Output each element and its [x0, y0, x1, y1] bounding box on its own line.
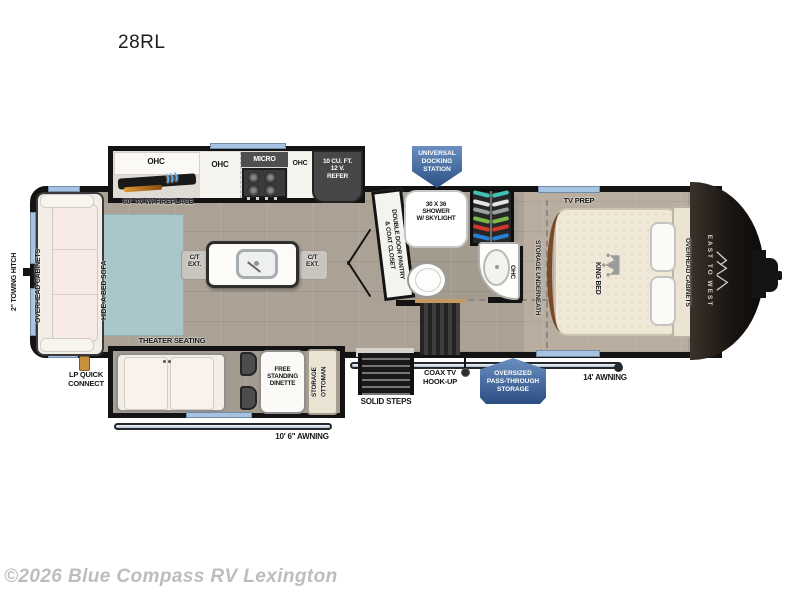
mountain-icon — [716, 249, 730, 293]
hitch-icon — [23, 268, 31, 276]
ct-ext-label: C/T EXT. — [299, 254, 326, 269]
crown-icon — [600, 252, 626, 278]
sofa-cushion — [52, 204, 98, 342]
closet-pole-icon — [490, 191, 492, 244]
fireplace-flame-icon: ))) — [165, 171, 180, 185]
overhead-cabinet — [288, 152, 312, 198]
bedroom-window — [538, 186, 600, 193]
brand-logo: EAST TO WEST — [698, 221, 738, 321]
door-side-awning-line — [114, 423, 332, 430]
docking-station-badge: UNIVERSAL DOCKING STATION — [412, 146, 462, 188]
bath-ohc-label: OHC — [504, 257, 516, 287]
dealer-watermark: ©2026 Blue Compass RV Lexington — [4, 566, 338, 588]
interior-steps — [420, 303, 460, 355]
theater-seating-label: THEATER SEATING — [132, 337, 212, 346]
door-side-awning-label: 10' 6" AWNING — [266, 432, 338, 441]
sofa-armrest — [40, 338, 94, 352]
bedroom-window — [536, 350, 600, 357]
kitchen-slide-window — [210, 143, 286, 149]
refer-label: 10 CU. FT. 12 V. REFER — [312, 158, 363, 180]
hide-a-bed-label: HIDE-A-BED SOFA — [101, 238, 113, 342]
overhead-cabinet — [200, 152, 241, 198]
toilet-bowl-icon — [415, 268, 441, 292]
rv-floorplan: 28RL OHC ))) OHC MICRO OHC 10 CU. FT. 12… — [0, 0, 800, 600]
theater-cushion — [170, 357, 214, 410]
dinette-chair — [240, 352, 257, 376]
ohc-label: OHC — [200, 160, 240, 169]
coax-label: COAX TV HOOK-UP — [418, 369, 462, 386]
coax-hookup-icon — [461, 368, 470, 377]
tv-prep-label: TV PREP — [548, 197, 610, 206]
dinette-label: FREE STANDING DINETTE — [259, 366, 306, 388]
kingpin-hitch — [777, 271, 782, 280]
lp-quick-connect-label: LP QUICK CONNECT — [58, 371, 114, 388]
theater-cushion — [124, 357, 168, 410]
solid-steps — [358, 353, 414, 395]
burner-icon — [247, 184, 260, 197]
storage-ottoman-label: STORAGE OTTOMAN — [310, 352, 336, 412]
brand-name: EAST TO WEST — [707, 235, 714, 308]
overhead-cabinets-label: OVERHEAD CABINETS — [35, 230, 47, 342]
faucet-icon — [254, 261, 259, 266]
cupholder-icon — [163, 360, 166, 363]
awning-end-icon — [614, 363, 623, 372]
solid-steps-label: SOLID STEPS — [354, 397, 418, 406]
step-trim — [415, 299, 465, 303]
ohc-label: OHC — [288, 160, 312, 168]
burner-icon — [264, 171, 277, 184]
dinette-chair — [240, 386, 257, 410]
ohc-label: OHC — [114, 157, 198, 166]
bedroom-ohc-label: OVERHEAD CABINETS — [678, 228, 691, 316]
stove-knobs-icon — [247, 197, 279, 200]
lp-quick-connect-icon — [79, 356, 90, 371]
burner-icon — [264, 184, 277, 197]
micro-label: MICRO — [241, 156, 288, 164]
model-number: 28RL — [118, 32, 165, 54]
tv-fireplace-label: 50" TV W/ FIREPLACE — [112, 199, 204, 207]
drain-icon — [495, 265, 499, 269]
towing-hitch-label: 2" TOWING HITCH — [11, 234, 23, 330]
kingpin-hitch — [764, 258, 778, 292]
pantry-label: DOUBLE DOOR PANTRY & COAT CLOSET — [381, 209, 406, 281]
burner-icon — [247, 171, 260, 184]
main-awning-label: 14' AWNING — [576, 373, 634, 382]
pillow-icon — [650, 222, 676, 272]
pillow-icon — [650, 276, 676, 326]
living-slide-window — [186, 412, 252, 418]
storage-underneath-label: STORAGE UNDERNEATH — [528, 228, 541, 328]
sofa-armrest — [40, 194, 94, 208]
shower-label: 30 X 36 SHOWER W/ SKYLIGHT — [404, 201, 468, 223]
ct-ext-label: C/T EXT. — [181, 254, 208, 269]
king-bed-label: KING BED — [587, 246, 601, 310]
